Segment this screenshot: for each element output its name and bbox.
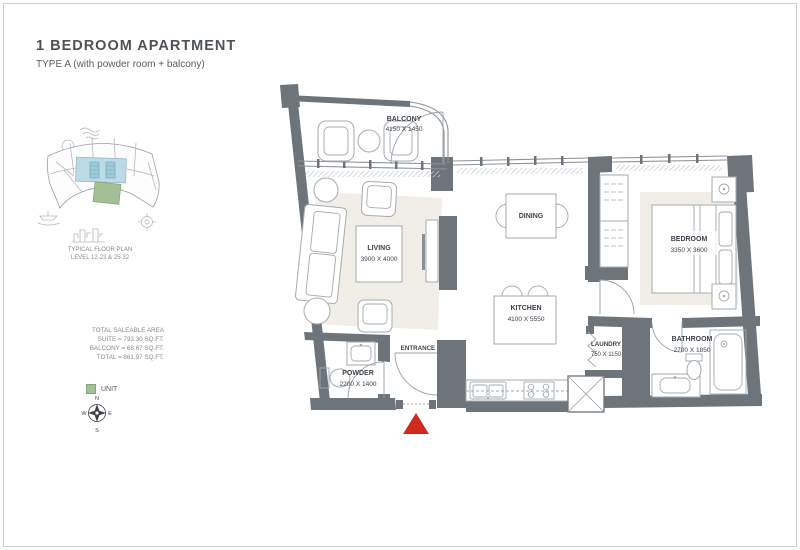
- powder-door: [348, 362, 384, 398]
- room-dims-bathroom: 2700 X 1850: [674, 347, 711, 354]
- nightstand-bottom: [712, 284, 736, 309]
- compass-w: W: [81, 411, 87, 417]
- bathroom-fixtures: [652, 322, 746, 397]
- caption-line2: LEVEL 12-23 & 25-32: [30, 254, 170, 262]
- compass-e: E: [108, 411, 112, 417]
- room-dims-laundry: 750 X 1150: [591, 352, 622, 358]
- water-ripples-icon: [80, 128, 100, 139]
- wardrobe: [600, 175, 628, 267]
- room-label-kitchen: KITCHEN: [510, 305, 541, 312]
- area-balcony: BALCONY = 68.67 SQ.FT.: [40, 344, 164, 353]
- skyline-icon: [72, 229, 105, 242]
- fridge-shaft-icon: [568, 376, 604, 412]
- curtain-hatch: [457, 168, 583, 174]
- tv-console: [426, 220, 438, 282]
- room-label-laundry: LAUNDRY: [591, 341, 622, 348]
- compass-s: S: [95, 428, 99, 434]
- area-suite: SUITE = 793.30 SQ.FT.: [40, 335, 164, 344]
- unit-floor-plan: BALCONY 4150 X 1450 LIVING 3900 X 4000 D…: [278, 82, 770, 442]
- room-dims-bedroom: 3350 X 3600: [671, 247, 708, 254]
- area-heading: TOTAL SALEABLE AREA: [40, 326, 164, 335]
- header: 1 BEDROOM APARTMENT TYPE A (with powder …: [36, 38, 236, 70]
- entry-marker-icon: [403, 413, 429, 434]
- room-dims-powder: 2200 X 1400: [340, 381, 377, 388]
- toilet-icon: [686, 354, 702, 380]
- room-dims-living: 3900 X 4000: [361, 256, 398, 263]
- entrance-area: [395, 353, 437, 434]
- bedroom-door: [600, 280, 634, 314]
- key-plan: [30, 112, 170, 244]
- compass-n: N: [95, 396, 99, 402]
- page-title: 1 BEDROOM APARTMENT: [36, 38, 236, 54]
- area-total: TOTAL = 861.97 SQ.FT.: [40, 353, 164, 362]
- entrance-door: [395, 353, 437, 395]
- coffee-table: [356, 226, 402, 282]
- room-label-bedroom: BEDROOM: [671, 236, 708, 243]
- caption-line1: TYPICAL FLOOR PLAN: [30, 246, 170, 254]
- room-dims-kitchen: 4100 X 5550: [508, 316, 545, 323]
- room-label-living: LIVING: [367, 245, 391, 252]
- compass-rose: N E S W: [77, 392, 117, 436]
- balcony-furniture: [318, 112, 443, 164]
- core-highlight: [76, 157, 127, 183]
- key-plan-caption: TYPICAL FLOOR PLAN LEVEL 12-23 & 25-32: [30, 246, 170, 262]
- nightstand-top: [712, 177, 736, 202]
- saleable-area-block: TOTAL SALEABLE AREA SUITE = 793.30 SQ.FT…: [40, 326, 164, 362]
- room-label-bathroom: BATHROOM: [672, 336, 713, 343]
- room-dims-balcony: 4150 X 1450: [386, 126, 423, 133]
- building-footprint: [47, 138, 159, 208]
- room-label-entrance: ENTRANCE: [401, 345, 435, 352]
- boat-icon: [38, 211, 60, 225]
- laundry-fixtures: [588, 332, 596, 367]
- shower-icon: [710, 330, 746, 394]
- room-label-balcony: BALCONY: [387, 116, 422, 123]
- room-label-dining: DINING: [519, 213, 544, 220]
- unit-highlight: [93, 182, 121, 205]
- page-subtitle: TYPE A (with powder room + balcony): [36, 59, 236, 70]
- kitchen-counter: [466, 380, 568, 401]
- curtain-hatch: [306, 171, 440, 177]
- floor-plan-page: 1 BEDROOM APARTMENT TYPE A (with powder …: [0, 0, 800, 550]
- roundabout-icon: [138, 213, 156, 231]
- curtain-hatch: [616, 165, 722, 171]
- room-label-powder: POWDER: [342, 370, 374, 377]
